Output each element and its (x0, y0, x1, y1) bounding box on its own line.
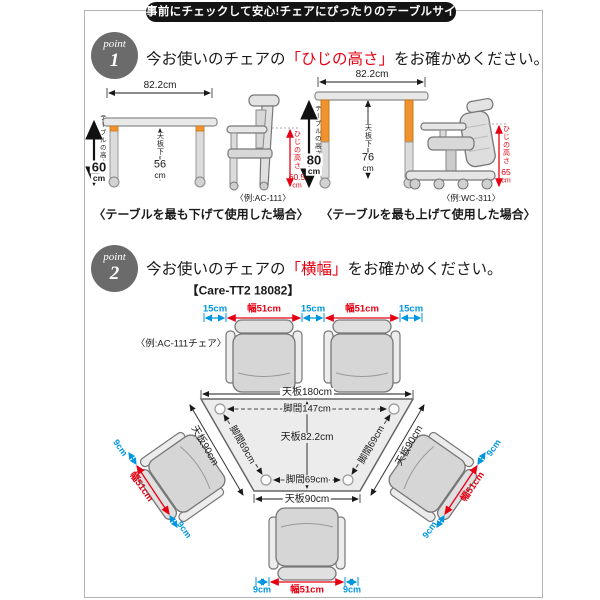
table-bottom-dim: 天板90cm (283, 495, 331, 505)
p1-left-width-label: 82.2cm (144, 81, 177, 91)
bottom-chair (269, 508, 345, 580)
p1-right-caption: 〈テーブルを最も上げて使用した場合〉 (320, 206, 535, 223)
p1-left-height-label: テーブルの高さ (98, 114, 105, 167)
table-legspan-top-dim: 脚間147cm (282, 404, 332, 414)
p2-example: 〈例:AC-111チェア〉 (136, 339, 226, 349)
p1-right-width-label: 82.2cm (356, 70, 389, 80)
bottom-chair-width: 幅51cm (290, 585, 324, 595)
p2-width-label-2: 幅51cm (345, 304, 379, 314)
point1-right-chair-illustration (406, 98, 497, 189)
p1-left-under-unit: cm (152, 171, 167, 180)
p1-right-elbow-label: ひじの高さ (503, 125, 510, 165)
p1-right-under-label: 天板下 (363, 124, 374, 148)
p1-right-elbow-unit: cm (501, 178, 510, 185)
diagram-artwork (0, 0, 600, 600)
product-infographic: 事前にチェックして安心!チェアにぴったりのテーブルサイズ point 1 今お使… (0, 0, 600, 600)
p1-left-height-unit: cm (91, 174, 107, 183)
p1-right-height-label: テーブルの高さ (313, 105, 320, 158)
p1-right-example: 〈例:WC-311〉 (442, 194, 500, 203)
p2-gap-label-3: 15cm (399, 304, 423, 314)
p2-width-label-1: 幅51cm (247, 304, 281, 314)
p2-gap-label-2: 15cm (301, 304, 325, 314)
table-top-dim: 天板180cm (280, 388, 334, 398)
table-depth-dim: 天板82.2cm (280, 433, 335, 443)
p1-left-example: 〈例:AC-111〉 (235, 194, 290, 203)
point2-top-measure-row (204, 313, 422, 322)
p1-left-elbow-label: ひじの高さ (294, 130, 301, 170)
top-chair-1 (226, 320, 302, 392)
p1-right-under-unit: cm (360, 164, 375, 173)
p2-gap-label-1: 15cm (203, 304, 227, 314)
point1-left-chair-illustration (227, 95, 279, 190)
p1-right-height-unit: cm (306, 167, 322, 176)
p1-right-elbow-value: 65 (501, 168, 510, 177)
table-legspan-bottom-dim: 脚間69cm (285, 475, 329, 485)
p1-left-under-label: 天板下 (155, 132, 166, 156)
p1-left-elbow-value: 60.5 (289, 173, 306, 182)
top-chair-2 (324, 320, 400, 392)
p1-left-caption: 〈テーブルを最も下げて使用した場合〉 (93, 206, 308, 223)
bottom-chair-gap-left: 9cm (253, 586, 271, 595)
p1-left-height-value: 60 (90, 161, 108, 174)
bottom-chair-gap-right: 9cm (343, 586, 361, 595)
p1-left-elbow-unit: cm (292, 183, 301, 190)
p1-right-height-value: 80 (305, 154, 323, 167)
